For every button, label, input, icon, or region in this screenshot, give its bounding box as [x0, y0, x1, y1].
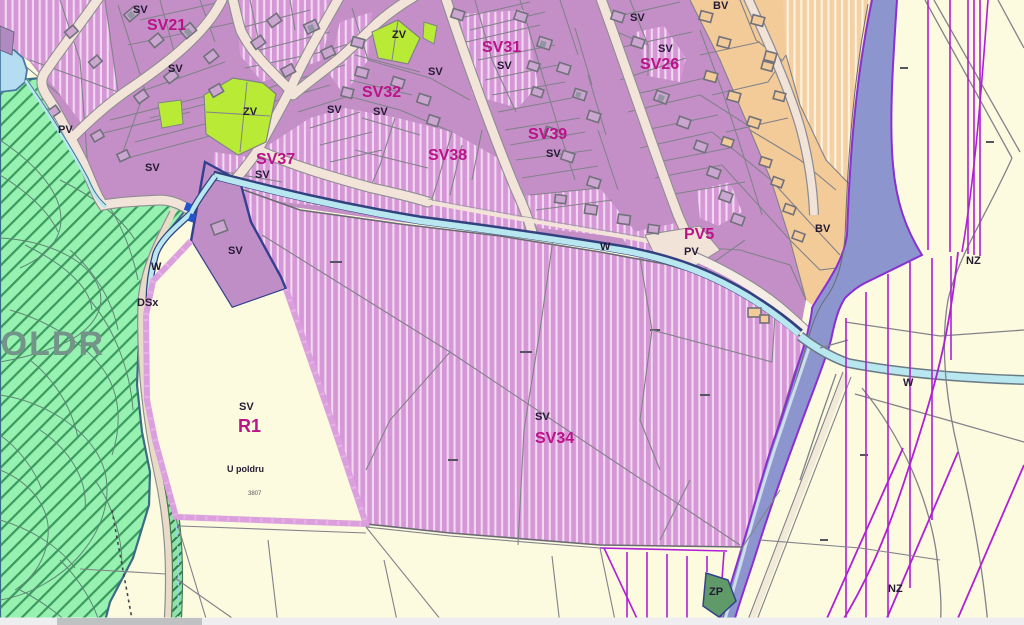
- svg-text:ZV: ZV: [243, 106, 258, 118]
- svg-text:SV: SV: [239, 401, 254, 413]
- svg-text:W: W: [151, 261, 162, 273]
- svg-text:BV: BV: [713, 0, 729, 12]
- svg-text:SV34: SV34: [535, 430, 574, 447]
- svg-text:SV: SV: [428, 66, 443, 78]
- svg-text:SV: SV: [630, 12, 645, 24]
- svg-text:SV: SV: [255, 169, 270, 181]
- svg-text:R1: R1: [238, 416, 261, 436]
- svg-text:SV: SV: [228, 245, 243, 257]
- svg-text:SV38: SV38: [428, 147, 467, 164]
- svg-text:SV: SV: [535, 411, 550, 423]
- svg-text:ZP: ZP: [709, 586, 723, 598]
- svg-text:ZV: ZV: [392, 29, 407, 41]
- svg-text:SV32: SV32: [362, 84, 401, 101]
- svg-text:SV31: SV31: [482, 39, 521, 56]
- svg-text:SV: SV: [658, 43, 673, 55]
- svg-text:POLDR: POLDR: [0, 325, 105, 363]
- svg-text:SV: SV: [497, 60, 512, 72]
- svg-text:SV37: SV37: [256, 151, 295, 168]
- svg-text:DSx: DSx: [137, 297, 159, 309]
- svg-text:NZ: NZ: [888, 583, 903, 595]
- svg-text:U poldru: U poldru: [227, 464, 264, 474]
- svg-text:SV: SV: [145, 162, 160, 174]
- svg-text:SV: SV: [327, 104, 342, 116]
- svg-text:SV: SV: [168, 63, 183, 75]
- svg-text:PV5: PV5: [684, 226, 714, 243]
- svg-text:W: W: [600, 241, 611, 253]
- svg-text:PV: PV: [58, 124, 73, 136]
- svg-text:SV: SV: [546, 148, 561, 160]
- svg-text:BV: BV: [815, 223, 831, 235]
- svg-text:SV26: SV26: [640, 56, 679, 73]
- svg-text:PV: PV: [684, 246, 699, 258]
- svg-text:3807: 3807: [248, 491, 262, 497]
- svg-text:SV21: SV21: [147, 17, 186, 34]
- svg-text:NZ: NZ: [966, 255, 981, 267]
- svg-text:SV39: SV39: [528, 126, 567, 143]
- svg-text:W: W: [903, 377, 914, 389]
- svg-text:SV: SV: [373, 106, 388, 118]
- svg-text:SV: SV: [133, 4, 148, 16]
